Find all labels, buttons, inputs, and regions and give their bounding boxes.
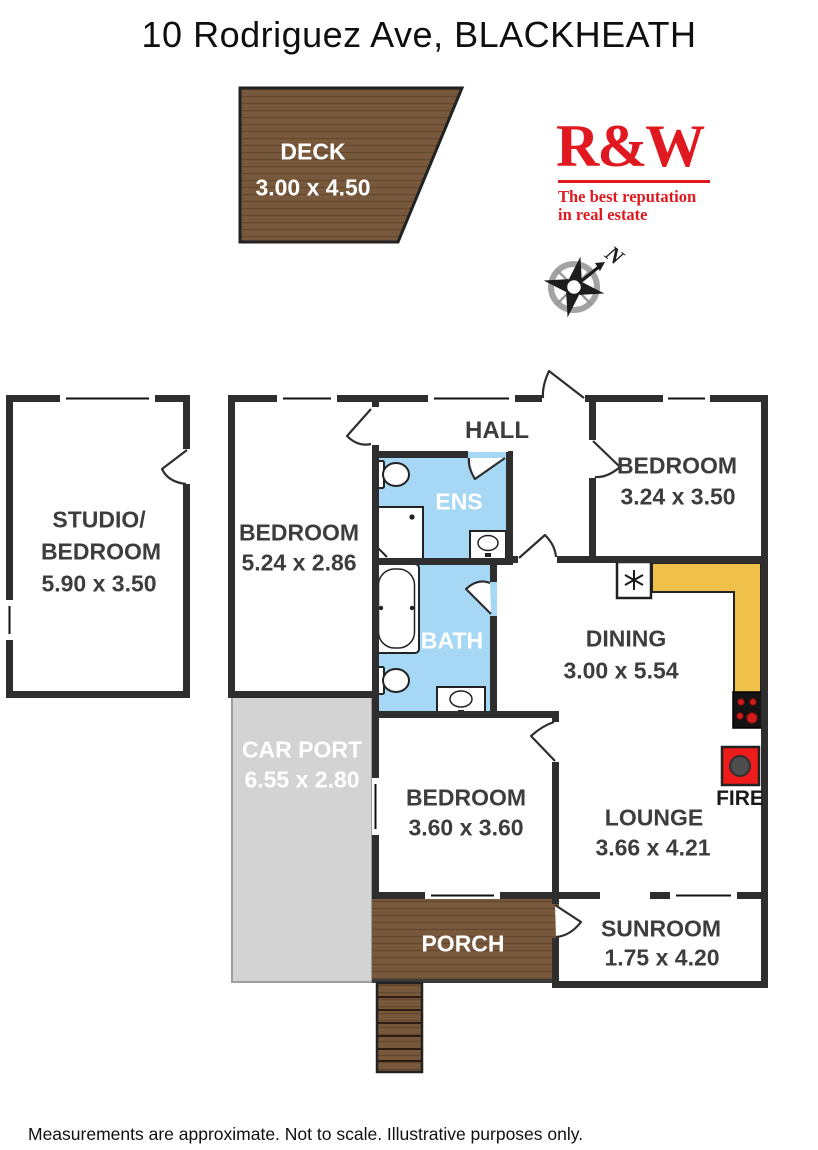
label-sunroom: SUNROOM — [601, 916, 721, 943]
label-sunroom-dims: 1.75 x 4.20 — [604, 945, 719, 972]
label-lounge-dims: 3.66 x 4.21 — [595, 835, 710, 862]
fixture-symbol-icon — [617, 562, 651, 598]
label-hall: HALL — [465, 417, 529, 445]
label-bedroom3: BEDROOM — [406, 785, 526, 812]
bath-sink-icon — [437, 687, 485, 715]
label-studio-1: STUDIO/ — [52, 507, 145, 534]
cooktop-icon — [733, 692, 762, 728]
label-studio-2: BEDROOM — [41, 539, 161, 566]
label-deck: DECK — [280, 139, 345, 166]
label-bedroom3-dims: 3.60 x 3.60 — [408, 815, 523, 842]
label-deck-dims: 3.00 x 4.50 — [255, 175, 370, 202]
disclaimer-text: Measurements are approximate. Not to sca… — [28, 1124, 583, 1145]
label-ens: ENS — [435, 489, 482, 516]
label-bedroom2-dims: 3.24 x 3.50 — [620, 484, 735, 511]
compass-rose-icon: N — [537, 240, 629, 324]
label-bedroom2: BEDROOM — [617, 453, 737, 480]
label-lounge: LOUNGE — [605, 805, 703, 832]
label-bath: BATH — [421, 628, 483, 655]
fireplace-icon — [722, 747, 759, 785]
deck-area — [240, 88, 462, 242]
label-carport-dims: 6.55 x 2.80 — [244, 767, 359, 794]
label-bedroom1: BEDROOM — [239, 520, 359, 547]
label-porch: PORCH — [421, 931, 504, 958]
shower-icon — [374, 507, 423, 559]
ens-sink-icon — [470, 531, 506, 559]
compass-north-label: N — [600, 240, 630, 271]
label-studio-dims: 5.90 x 3.50 — [41, 571, 156, 598]
label-carport: CAR PORT — [242, 737, 362, 764]
steps-icon — [377, 983, 422, 1072]
label-fire: FIRE — [716, 787, 764, 811]
label-dining: DINING — [586, 626, 667, 653]
label-dining-dims: 3.00 x 5.54 — [563, 658, 678, 685]
label-bedroom1-dims: 5.24 x 2.86 — [241, 550, 356, 577]
bathtub-icon — [374, 564, 419, 653]
floor-plan-page: 10 Rodriguez Ave, BLACKHEATH R&W The bes… — [0, 0, 818, 1150]
